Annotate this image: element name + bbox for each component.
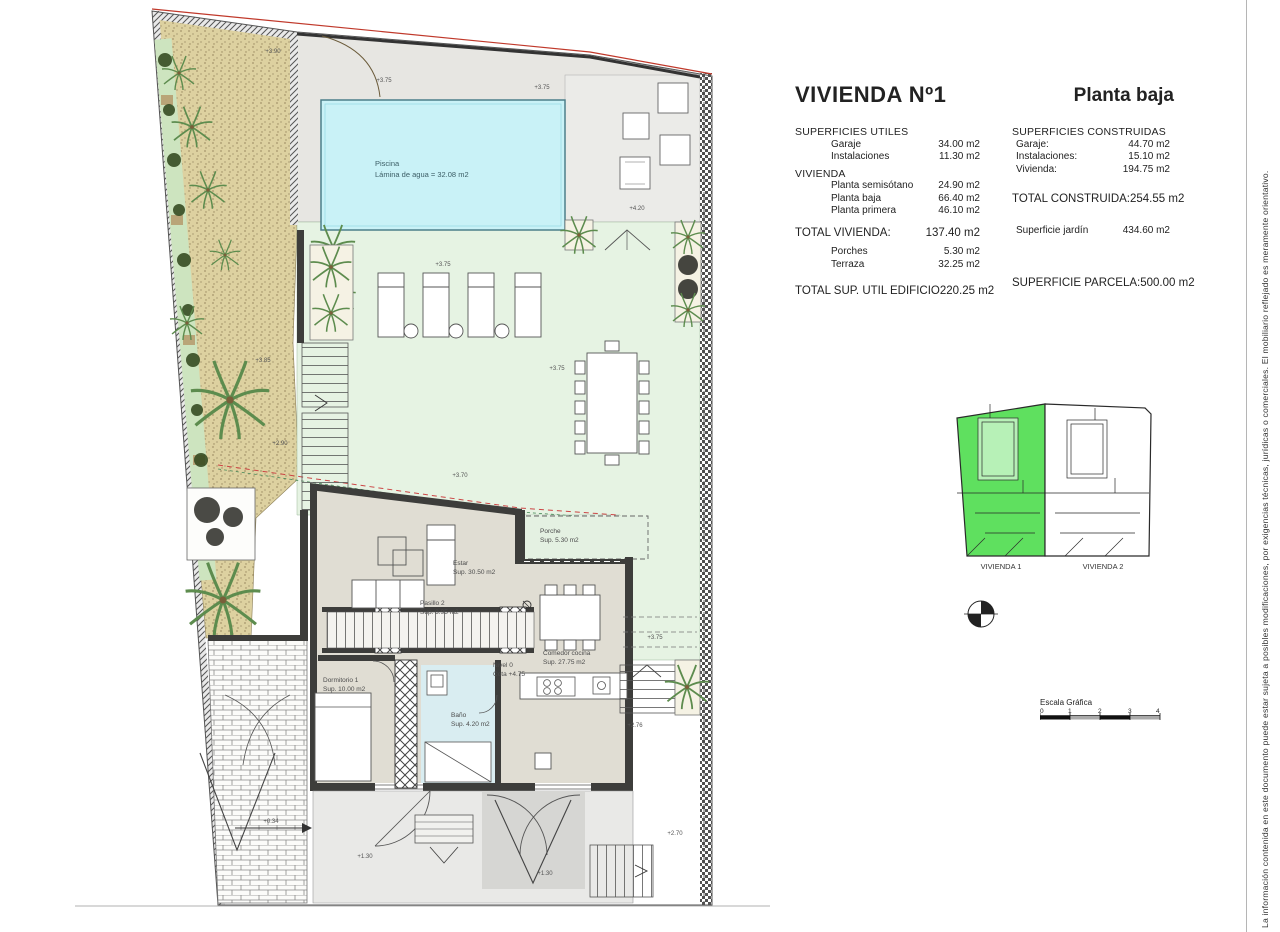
room-comedor-name: Comedor cocina [543, 650, 591, 657]
room-pasillo-area: Sup. 3.95 m2 [420, 609, 459, 616]
total-construida-value: 254.55 m2 [1130, 193, 1184, 206]
porch [518, 516, 648, 559]
jardin-value: 434.60 m2 [1123, 225, 1170, 238]
patio [313, 791, 653, 903]
pool-area-label: Lámina de agua = 32.08 m2 [375, 170, 469, 179]
utiles-header: SUPERFICIES UTILES [795, 126, 980, 139]
level-ramp: +0.34 [263, 819, 279, 825]
construidas-row-value: 194.75 m2 [1123, 164, 1170, 177]
utiles-row-value: 11.30 m2 [939, 151, 980, 164]
vivienda-row-label: Planta primera [795, 205, 896, 218]
utiles-row-label: Instalaciones [795, 151, 889, 164]
room-dormitorio-name: Dormitorio 1 [323, 677, 359, 684]
key-plan-unit1-label: VIVIENDA 1 [981, 562, 1022, 571]
sheet-frame-line [1246, 0, 1247, 932]
level-side-path: +3.75 [647, 635, 663, 641]
level-garden-upper: +3.85 [255, 358, 271, 364]
parcela-value: 500.00 m2 [1140, 277, 1194, 290]
scale-tick: 0 [1040, 708, 1044, 715]
level-lawn-bottom: +3.70 [452, 473, 468, 479]
construidas-row-label: Garaje: [1012, 139, 1049, 152]
porches-value: 5.30 m2 [944, 246, 980, 259]
room-porche-name: Porche [540, 528, 561, 535]
level-pool-deck-right: +3.75 [534, 85, 550, 91]
scale-tick: 4 [1156, 708, 1160, 715]
level-pool-deck-left: +3.75 [376, 78, 392, 84]
total-vivienda-label: TOTAL VIVIENDA: [795, 227, 891, 240]
fence-strip [700, 73, 712, 905]
room-porche-area: Sup. 5.30 m2 [540, 537, 579, 544]
level-garden-lower: +2.90 [272, 441, 288, 447]
level-lawn-mid: +3.75 [549, 366, 565, 372]
lawn-planter-left [310, 245, 353, 340]
key-plan: VIVIENDA 1 VIVIENDA 2 [945, 398, 1175, 638]
vivienda-row-value: 66.40 m2 [938, 193, 980, 206]
side-path [620, 617, 709, 715]
room-estar-name: Estar [453, 560, 469, 567]
right-planter [671, 220, 705, 327]
vivienda-row-label: Planta baja [795, 193, 881, 206]
total-util-value: 220.25 m2 [940, 285, 994, 298]
construidas-row-value: 15.10 m2 [1128, 151, 1170, 164]
dining-furniture [540, 585, 600, 650]
room-bano-area: Sup. 4.20 m2 [451, 721, 490, 728]
garden-retaining-wall [290, 33, 298, 225]
brick-driveway [200, 635, 312, 903]
north-arrow-icon [964, 601, 998, 627]
page-subtitle: Planta baja [1074, 85, 1174, 107]
jardin-label: Superficie jardín [1012, 225, 1088, 238]
room-bano-name: Baño [451, 712, 467, 719]
pool-label: Piscina [375, 159, 400, 168]
drawing-sheet: Piscina Lámina de agua = 32.08 m2 [0, 0, 1280, 932]
terraza-value: 32.25 m2 [938, 259, 980, 272]
level-stairs-out: +2.70 [667, 831, 683, 837]
utiles-row-label: Garaje [795, 139, 861, 152]
vivienda-header: VIVIENDA [795, 168, 980, 181]
scale-bar-title: Escala Gráfica [1040, 698, 1170, 707]
house [310, 483, 648, 791]
disclaimer-text: La información contenida en este documen… [1260, 0, 1270, 928]
vivienda-row-value: 46.10 m2 [938, 205, 980, 218]
parcela-label: SUPERFICIE PARCELA: [1012, 277, 1140, 290]
level-terrace: +4.20 [629, 206, 645, 212]
total-util-label: TOTAL SUP. UTIL EDIFICIO [795, 285, 940, 298]
construidas-row-label: Instalaciones: [1012, 151, 1077, 164]
construidas-row-label: Vivienda: [1012, 164, 1057, 177]
deck-planter [560, 216, 597, 253]
total-construida-label: TOTAL CONSTRUIDA: [1012, 193, 1130, 206]
room-pasillo-name: Pasillo 2 [420, 600, 445, 607]
construidas-row-value: 44.70 m2 [1128, 139, 1170, 152]
key-plan-unit2-label: VIVIENDA 2 [1083, 562, 1124, 571]
room-nivel-cota: Cota +4.75 [493, 671, 525, 678]
scale-bar: Escala Gráfica 0 1 2 3 4 [1040, 698, 1170, 727]
room-estar-area: Sup. 30.50 m2 [453, 569, 496, 576]
superficies-construidas-table: SUPERFICIES CONSTRUIDAS Garaje:44.70 m2 … [1012, 126, 1170, 290]
porches-label: Porches [795, 246, 868, 259]
level-porch-rear: +2.76 [627, 723, 643, 729]
superficies-utiles-table: SUPERFICIES UTILES Garaje34.00 m2 Instal… [795, 126, 980, 298]
level-gate: +3.90 [265, 49, 281, 55]
vivienda-row-label: Planta semisótano [795, 180, 913, 193]
site-plan: Piscina Lámina de agua = 32.08 m2 [75, 5, 775, 925]
total-vivienda-value: 137.40 m2 [926, 227, 980, 240]
vivienda-row-value: 24.90 m2 [938, 180, 980, 193]
terraza-label: Terraza [795, 259, 864, 272]
room-dormitorio-area: Sup. 10.00 m2 [323, 686, 366, 693]
level-patio-left: +1.30 [357, 854, 373, 860]
level-patio-right: +1.30 [537, 871, 553, 877]
page-title: VIVIENDA Nº1 [795, 82, 946, 108]
room-nivel-name: Nivel 0 [493, 662, 513, 669]
level-lawn-top: +3.75 [435, 262, 451, 268]
room-comedor-area: Sup. 27.75 m2 [543, 659, 586, 666]
utiles-row-value: 34.00 m2 [938, 139, 980, 152]
construidas-header: SUPERFICIES CONSTRUIDAS [1012, 126, 1170, 139]
pool: Piscina Lámina de agua = 32.08 m2 [321, 100, 565, 230]
